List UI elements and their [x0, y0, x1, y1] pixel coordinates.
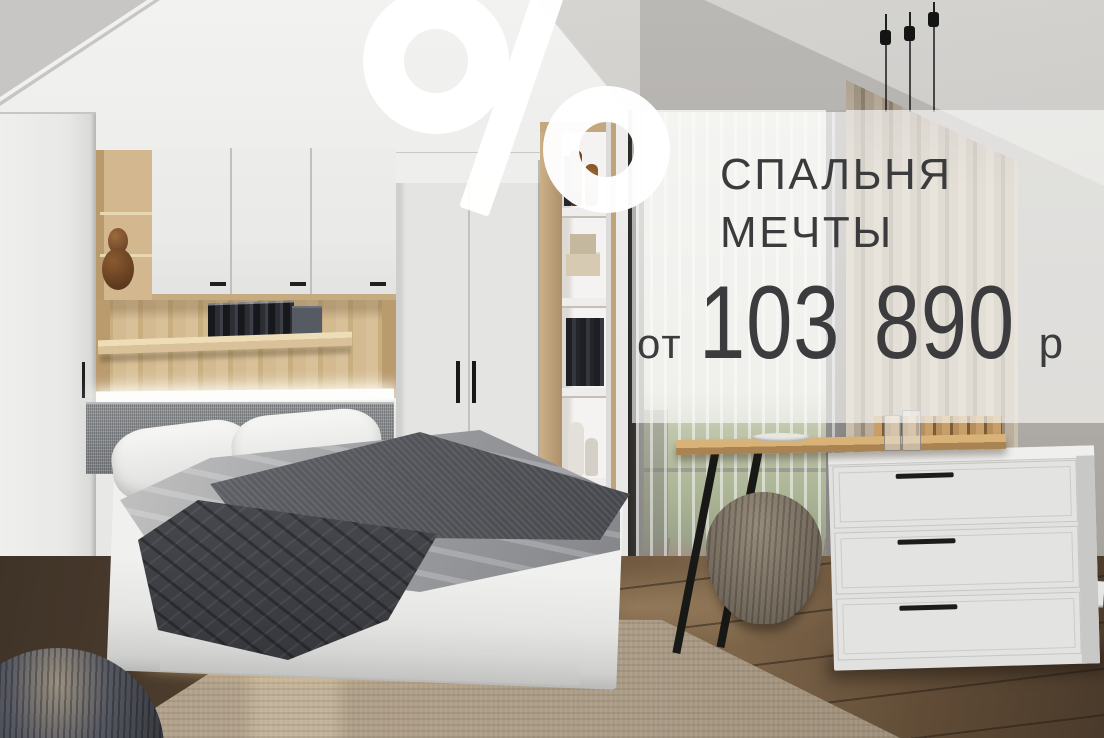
overhead-cabinets	[152, 148, 396, 300]
niche-shelf	[100, 212, 152, 215]
dresser-drawer	[836, 592, 1082, 661]
pendant-stem	[885, 14, 887, 30]
decor-books	[566, 318, 604, 386]
dresser-drawer	[832, 460, 1078, 529]
dresser-drawer	[834, 526, 1080, 595]
bridge-open-niche	[96, 150, 152, 302]
title-line-1: СПАЛЬНЯ	[720, 146, 953, 204]
drawer-inset	[839, 466, 1072, 522]
price-amount: 103 890	[699, 264, 957, 383]
pendant-cord	[885, 45, 887, 112]
wardrobe-left-handle	[82, 362, 85, 398]
percent-icon	[543, 86, 670, 213]
decor-vase	[585, 438, 598, 476]
decor-vase	[568, 422, 584, 476]
cabinet-door-gap	[230, 148, 232, 294]
drawer-inset	[842, 598, 1075, 654]
dresser	[828, 445, 1100, 670]
pendant-stem	[909, 12, 911, 26]
wardrobe-handle	[456, 361, 460, 403]
price-prefix: от	[637, 320, 683, 368]
bookcase-shelf	[562, 388, 606, 398]
promo-banner[interactable]: СПАЛЬНЯ МЕЧТЫ от 103 890 р	[0, 0, 1104, 738]
price-currency: р	[1039, 319, 1063, 369]
panel-side	[382, 300, 396, 398]
cabinet-handle	[210, 282, 226, 286]
drawer-inset	[840, 532, 1073, 588]
wardrobe-handle	[472, 361, 476, 403]
desk-plate	[752, 433, 810, 442]
decor-box	[570, 234, 596, 254]
cabinet-handle	[290, 282, 306, 286]
decor-vase	[102, 248, 134, 290]
pendant-light	[880, 14, 892, 114]
pendant-head	[904, 26, 915, 41]
pendant-head	[880, 30, 891, 45]
pendant-stem	[933, 2, 935, 12]
pendant-light	[928, 2, 940, 114]
cabinet-handle	[370, 282, 386, 286]
decor-box	[566, 252, 600, 276]
pendant-light	[904, 12, 916, 114]
pendant-cord	[933, 27, 935, 112]
bookcase-shelf	[562, 298, 606, 308]
cabinet-door-gap	[310, 148, 312, 294]
pendant-head	[928, 12, 939, 27]
pendant-cord	[909, 41, 911, 112]
price: от 103 890 р	[637, 264, 1063, 382]
title-line-2: МЕЧТЫ	[720, 204, 953, 262]
page-title: СПАЛЬНЯ МЕЧТЫ	[720, 146, 953, 262]
